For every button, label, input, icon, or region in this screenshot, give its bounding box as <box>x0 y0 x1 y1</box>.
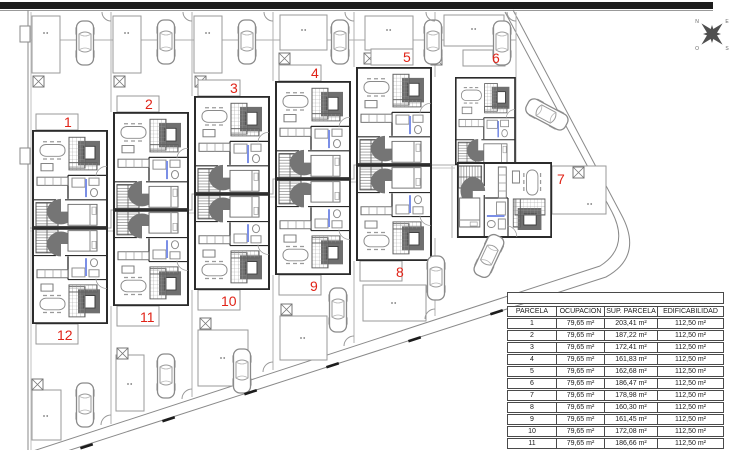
car-icon <box>330 20 349 64</box>
table-cell: 203,41 m² <box>605 318 658 329</box>
table-cell: 112,50 m² <box>658 414 724 425</box>
parcel-number-8: 8 <box>396 264 404 280</box>
house-plan-3 <box>195 97 269 193</box>
table-row: 279,65 m²187,22 m²112,50 m² <box>507 330 724 341</box>
table-cell: 79,65 m² <box>557 354 605 365</box>
table-cell: 79,65 m² <box>557 438 605 449</box>
compass-letter-s: S <box>725 46 729 52</box>
col-header-edificabilidad: EDIFICABILIDAD <box>658 306 724 317</box>
site-plan-sheet: 1 2 3 4 5 6 7 8 9 10 11 12 N E S O PARCE… <box>0 0 750 450</box>
house-plan-9 <box>276 180 350 274</box>
road-bar <box>0 2 713 9</box>
parcel-number-9: 9 <box>310 278 318 294</box>
table-cell: 112,50 m² <box>658 318 724 329</box>
parcel-number-11: 11 <box>140 309 155 325</box>
table-cell: 10 <box>507 426 557 437</box>
table-header-row: PARCELA OCUPACION SUP. PARCELA EDIFICABI… <box>507 306 724 317</box>
table-row: 179,65 m²203,41 m²112,50 m² <box>507 318 724 329</box>
table-cell: 112,50 m² <box>658 366 724 377</box>
table-cell: 79,65 m² <box>557 414 605 425</box>
car-icon <box>471 232 507 280</box>
house-plan-7 <box>458 163 551 237</box>
table-row: 379,65 m²172,41 m²112,50 m² <box>507 342 724 353</box>
table-cell: 3 <box>507 342 557 353</box>
table-cell: 112,50 m² <box>658 426 724 437</box>
car-icon <box>156 354 175 398</box>
table-cell: 79,65 m² <box>557 318 605 329</box>
parcel-number-10: 10 <box>221 293 237 309</box>
table-cell: 11 <box>507 438 557 449</box>
table-row: 579,65 m²162,68 m²112,50 m² <box>507 366 724 377</box>
table-cell: 161,83 m² <box>605 354 658 365</box>
car-icon <box>156 20 175 64</box>
car-icon <box>426 256 445 300</box>
house-plan-6 <box>456 78 515 164</box>
house-plan-11 <box>114 211 188 305</box>
table-title-band <box>507 292 724 304</box>
table-cell: 186,66 m² <box>605 438 658 449</box>
table-cell: 79,65 m² <box>557 342 605 353</box>
compass-letter-e: E <box>725 19 729 25</box>
house-plan-10 <box>195 195 269 289</box>
table-cell: 79,65 m² <box>557 402 605 413</box>
table-cell: 79,65 m² <box>557 330 605 341</box>
col-header-sup-parcela: SUP. PARCELA <box>605 306 658 317</box>
table-cell: 79,65 m² <box>557 390 605 401</box>
parcela-table: PARCELA OCUPACION SUP. PARCELA EDIFICABI… <box>507 305 724 450</box>
table-row: 1079,65 m²172,08 m²112,50 m² <box>507 426 724 437</box>
table-cell: 112,50 m² <box>658 402 724 413</box>
car-icon <box>423 20 442 64</box>
parcel-number-2: 2 <box>145 96 153 112</box>
car-icon <box>75 21 94 65</box>
table-row: 879,65 m²160,30 m²112,50 m² <box>507 402 724 413</box>
car-icon <box>523 96 571 134</box>
table-row: 479,65 m²161,83 m²112,50 m² <box>507 354 724 365</box>
parcel-number-12: 12 <box>57 327 73 343</box>
top-road <box>0 2 713 11</box>
table-cell: 160,30 m² <box>605 402 658 413</box>
table-cell: 9 <box>507 414 557 425</box>
table-row: 1179,65 m²186,66 m²112,50 m² <box>507 438 724 449</box>
table-cell: 112,50 m² <box>658 378 724 389</box>
table-cell: 162,68 m² <box>605 366 658 377</box>
table-cell: 172,08 m² <box>605 426 658 437</box>
table-cell: 8 <box>507 402 557 413</box>
table-cell: 186,47 m² <box>605 378 658 389</box>
compass-letter-n: N <box>695 19 699 25</box>
parcel-number-3: 3 <box>230 80 238 96</box>
table-cell: 112,50 m² <box>658 342 724 353</box>
parcel-number-1: 1 <box>64 114 72 130</box>
table-cell: 5 <box>507 366 557 377</box>
table-cell: 79,65 m² <box>557 366 605 377</box>
car-icon <box>232 349 251 393</box>
table-cell: 2 <box>507 330 557 341</box>
table-cell: 7 <box>507 390 557 401</box>
table-cell: 178,98 m² <box>605 390 658 401</box>
compass-rose-icon: N E S O <box>691 13 733 55</box>
table-cell: 4 <box>507 354 557 365</box>
table-row: 779,65 m²178,98 m²112,50 m² <box>507 390 724 401</box>
parcel-number-7: 7 <box>557 171 565 187</box>
table-row: 679,65 m²186,47 m²112,50 m² <box>507 378 724 389</box>
table-row: 979,65 m²161,45 m²112,50 m² <box>507 414 724 425</box>
table-cell: 79,65 m² <box>557 378 605 389</box>
table-cell: 172,41 m² <box>605 342 658 353</box>
house-plan-1 <box>33 131 107 227</box>
col-header-parcela: PARCELA <box>507 306 557 317</box>
table-cell: 79,65 m² <box>557 426 605 437</box>
compass-letter-o: O <box>695 46 699 52</box>
parcel-number-4: 4 <box>311 65 319 81</box>
table-cell: 112,50 m² <box>658 438 724 449</box>
car-icon <box>237 20 256 64</box>
table-cell: 112,50 m² <box>658 330 724 341</box>
car-icon <box>328 288 347 332</box>
parcel-number-5: 5 <box>403 49 411 65</box>
table-cell: 187,22 m² <box>605 330 658 341</box>
house-plan-2 <box>114 113 188 209</box>
table-cell: 1 <box>507 318 557 329</box>
house-plan-8 <box>357 166 431 260</box>
table-cell: 161,45 m² <box>605 414 658 425</box>
table-cell: 6 <box>507 378 557 389</box>
parcela-table-wrap: PARCELA OCUPACION SUP. PARCELA EDIFICABI… <box>507 305 724 450</box>
house-plan-12 <box>33 229 107 323</box>
table-cell: 112,50 m² <box>658 354 724 365</box>
parcel-number-6: 6 <box>492 50 500 66</box>
table-cell: 112,50 m² <box>658 390 724 401</box>
house-plan-4 <box>276 82 350 178</box>
car-icon <box>75 383 94 427</box>
col-header-ocupacion: OCUPACION <box>557 306 605 317</box>
house-plan-5 <box>357 68 431 164</box>
